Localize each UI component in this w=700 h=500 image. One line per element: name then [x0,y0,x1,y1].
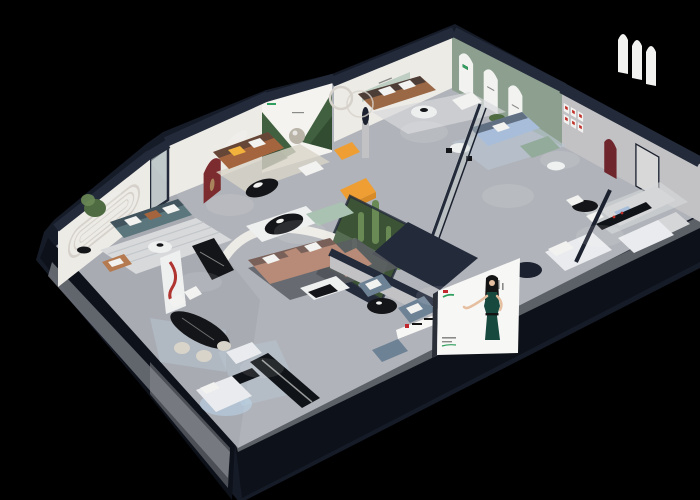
belt [486,313,499,315]
white-cup [376,301,382,304]
spot [576,225,624,247]
arch-frame [632,40,642,80]
sign-red-logo [405,324,409,328]
cream-chair [174,342,190,354]
billboard-logo-red [443,290,448,293]
cream-chair [196,350,212,362]
spot [240,358,284,378]
face [489,280,495,286]
mural-caption [292,112,304,113]
spot [400,121,448,143]
cactus [358,212,364,242]
mural-logo [267,103,276,105]
table-decor [420,108,428,112]
vertical-caption-line2 [502,283,504,290]
sign-characters [412,323,422,325]
spot [274,220,326,244]
showroom-render [0,0,700,500]
spot [540,151,580,169]
arch-frame [618,34,628,74]
sphere-highlight [293,131,298,136]
table-decor [157,243,164,247]
mural-mirror-sphere [289,128,305,144]
white-round-table [148,241,172,253]
black-chair [446,148,452,153]
spot [206,194,254,216]
black-side-table [77,247,91,254]
billboard-caption-2 [442,341,452,342]
cream-chair [217,341,231,351]
black-round-table [367,298,397,314]
red-dot-decor [613,216,616,219]
sculpture-pedestal [362,122,369,158]
sign-characters-2 [424,318,434,320]
isometric-scene [0,0,700,500]
arch-frame [646,46,656,86]
billboard-caption [442,337,456,339]
spot [178,272,222,292]
billboard-side-edge [432,291,438,358]
spot [482,184,534,208]
plant-foliage [81,194,95,206]
red-dot-decor [621,212,624,215]
